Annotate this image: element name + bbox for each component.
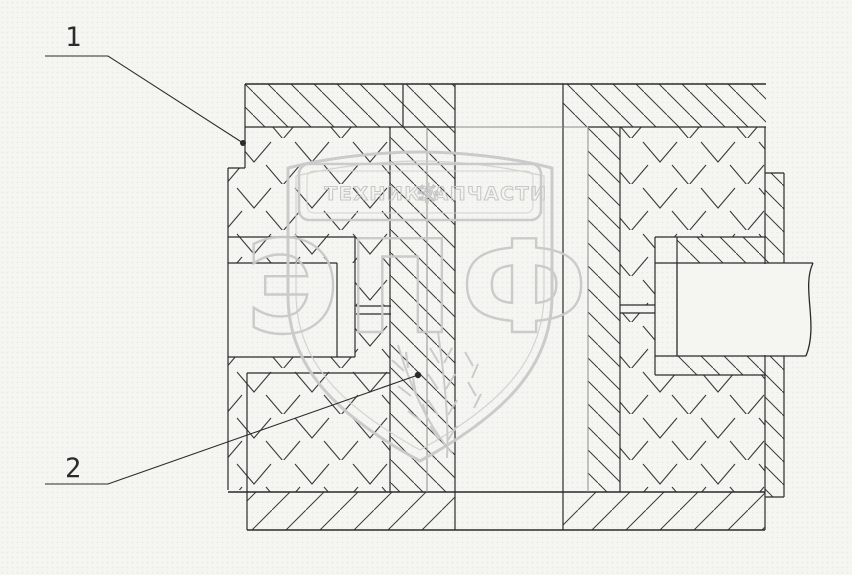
right-wall-lower-hatch xyxy=(765,356,784,497)
callout-2-dot xyxy=(415,372,421,378)
drawing-page: ТЕХНИКА ЗАПЧАСТИ ЭПФ 1 2 xyxy=(0,0,852,575)
callout-1-label: 1 xyxy=(65,22,81,53)
right-upper-block-hatch xyxy=(620,127,765,237)
bottom-flange-left-hatch xyxy=(247,492,455,530)
shaft xyxy=(677,263,813,356)
left-wall-hatch xyxy=(228,373,247,490)
bottom-flange-right-hatch xyxy=(563,492,765,530)
top-flange-left-hatch xyxy=(245,84,455,127)
callout-2-label: 2 xyxy=(65,453,81,484)
right-mid-hatch-lower xyxy=(620,313,655,492)
callout-1-dot xyxy=(240,140,246,146)
right-lower-block-hatch xyxy=(655,375,765,492)
right-wall-upper-hatch xyxy=(765,173,784,263)
left-lower-block-hatch xyxy=(247,373,390,492)
callout-1: 1 xyxy=(45,22,246,146)
callout-1-leader xyxy=(45,56,243,143)
shaft-body xyxy=(678,264,812,355)
right-mid-hatch-upper xyxy=(620,237,655,305)
watermark-acronym: ЭПФ xyxy=(246,214,595,363)
top-flange-right-hatch xyxy=(563,84,766,127)
bushing-bottom-hatch xyxy=(677,356,765,375)
bushing-top-hatch xyxy=(677,237,765,263)
section-view-canvas: ТЕХНИКА ЗАПЧАСТИ ЭПФ 1 2 xyxy=(0,0,852,575)
